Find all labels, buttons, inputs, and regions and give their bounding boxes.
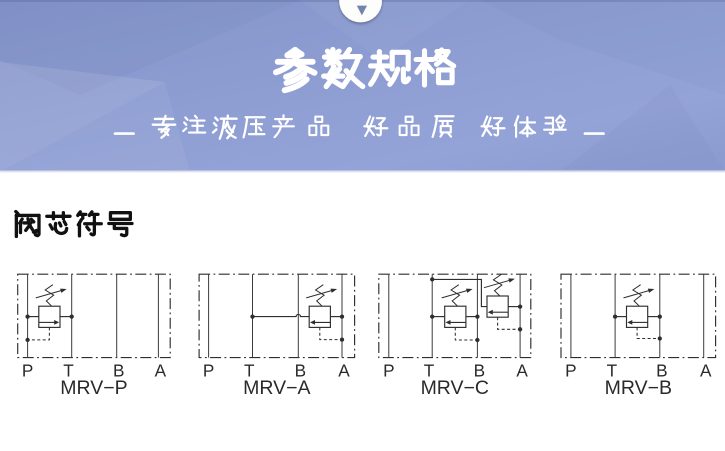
svg-text:A: A: [155, 360, 167, 380]
svg-text:P: P: [22, 360, 33, 380]
svg-text:P: P: [565, 360, 576, 380]
svg-text:MRV−A: MRV−A: [243, 377, 310, 399]
svg-text:MRV−B: MRV−B: [605, 377, 672, 399]
svg-text:P: P: [383, 360, 394, 380]
svg-text:MRV−C: MRV−C: [421, 377, 489, 399]
svg-text:A: A: [516, 360, 528, 380]
svg-text:MRV−P: MRV−P: [60, 377, 127, 399]
svg-text:A: A: [338, 360, 350, 380]
svg-text:A: A: [700, 360, 712, 380]
svg-text:P: P: [203, 360, 214, 380]
